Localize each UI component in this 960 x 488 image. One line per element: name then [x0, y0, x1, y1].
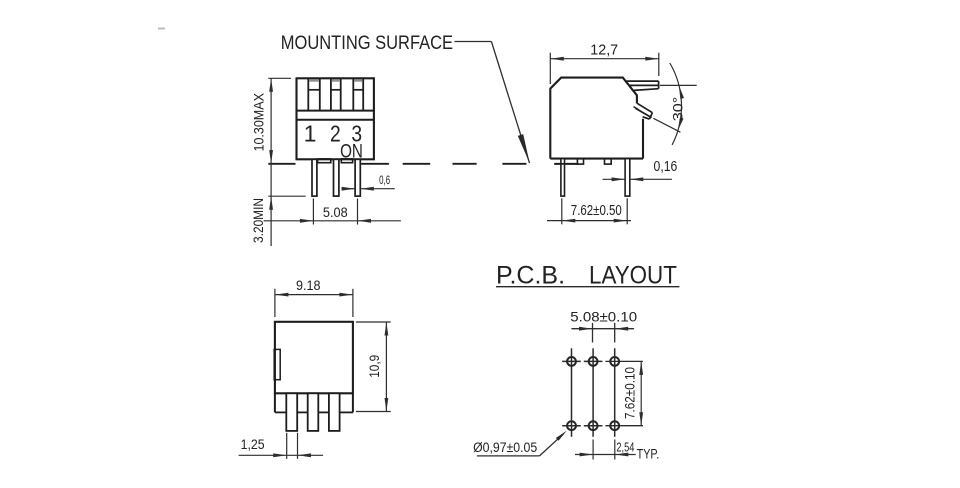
- svg-text:Ø0,97±0.05: Ø0,97±0.05: [473, 439, 537, 455]
- svg-text:7.62±0.50: 7.62±0.50: [571, 202, 622, 219]
- svg-text:1,25: 1,25: [241, 436, 265, 452]
- svg-text:0,16: 0,16: [654, 158, 678, 174]
- svg-text:1: 1: [304, 121, 317, 147]
- svg-text:7.62±0.10: 7.62±0.10: [622, 367, 638, 419]
- svg-text:TYP.: TYP.: [637, 446, 660, 461]
- svg-text:5.08: 5.08: [323, 204, 348, 220]
- svg-text:P.C.B.: P.C.B.: [496, 261, 565, 289]
- svg-text:ON: ON: [340, 140, 363, 162]
- svg-text:5.08±0.10: 5.08±0.10: [570, 310, 637, 325]
- svg-text:10.30MAX: 10.30MAX: [251, 93, 267, 152]
- svg-text:30°: 30°: [672, 97, 686, 122]
- svg-text:2,54: 2,54: [616, 441, 634, 455]
- svg-text:0,6: 0,6: [379, 175, 390, 188]
- svg-text:9.18: 9.18: [296, 277, 320, 293]
- svg-text:MOUNTING SURFACE: MOUNTING SURFACE: [281, 32, 453, 54]
- svg-text:12,7: 12,7: [590, 42, 618, 58]
- svg-text:2: 2: [330, 122, 341, 147]
- svg-text:10,9: 10,9: [366, 355, 382, 378]
- svg-text:LAYOUT: LAYOUT: [589, 262, 677, 289]
